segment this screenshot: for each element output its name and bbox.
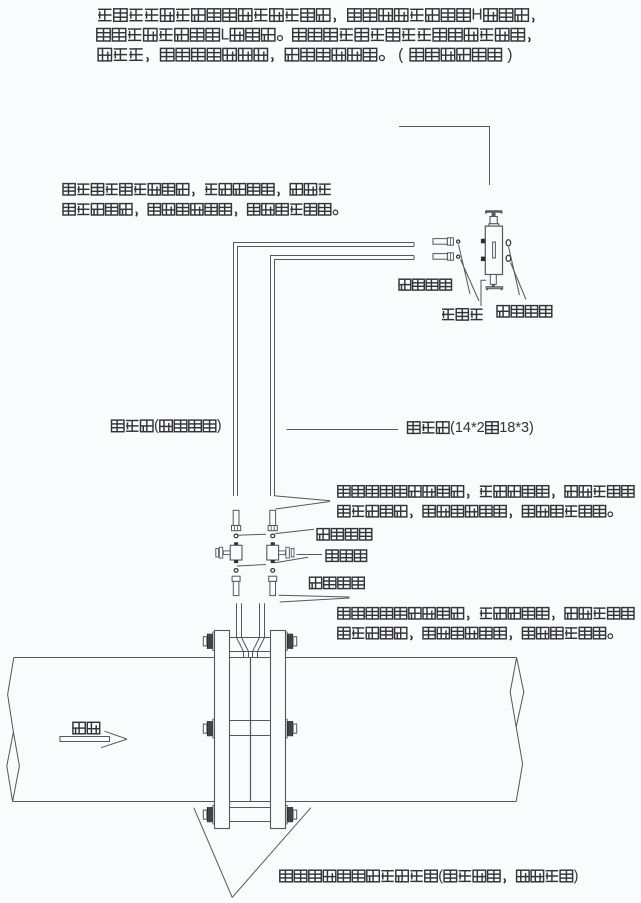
svg-text:H: H	[471, 7, 482, 24]
svg-text:(: (	[154, 418, 159, 434]
svg-text:18*3): 18*3)	[499, 420, 534, 436]
svg-text:(: (	[398, 47, 404, 64]
svg-text:(14*2: (14*2	[450, 420, 485, 436]
svg-text:): )	[217, 418, 222, 434]
svg-text:(: (	[438, 868, 443, 884]
svg-text:L: L	[221, 26, 230, 43]
svg-text:): )	[574, 868, 579, 884]
svg-text:): )	[507, 47, 512, 64]
